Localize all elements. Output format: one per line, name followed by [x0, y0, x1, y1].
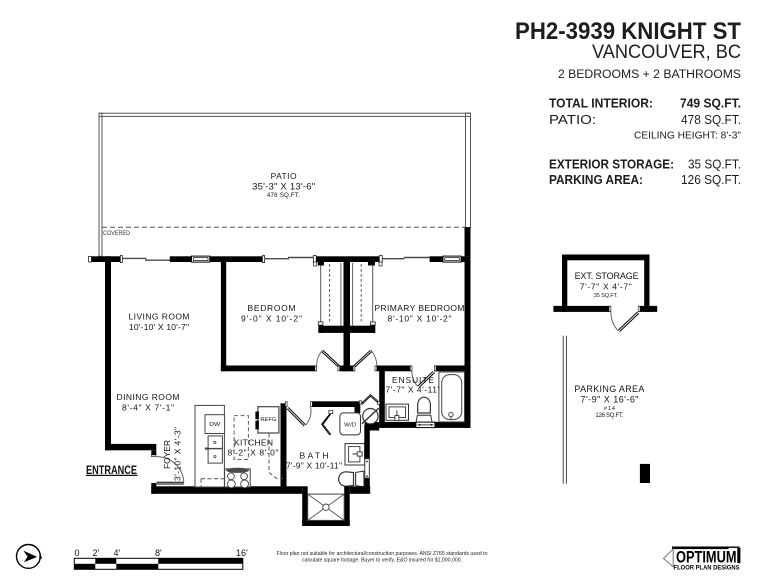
svg-text:478 SQ.FT.: 478 SQ.FT.	[267, 192, 300, 199]
svg-text:calculate square footage. Buye: calculate square footage. Buyer to verif…	[302, 558, 462, 564]
svg-text:N: N	[39, 555, 42, 560]
svg-text:PATIO:: PATIO:	[549, 113, 596, 127]
svg-text:8'-2" X 8'-0": 8'-2" X 8'-0"	[228, 447, 279, 457]
svg-text:KITCHEN: KITCHEN	[234, 437, 273, 447]
svg-text:ENSUITE: ENSUITE	[392, 375, 434, 385]
svg-text:2 BEDROOMS + 2 BATHROOMS: 2 BEDROOMS + 2 BATHROOMS	[558, 69, 741, 81]
svg-text:7'-9" X 16'-6": 7'-9" X 16'-6"	[581, 395, 639, 405]
svg-text:9'-0" X 10'-2": 9'-0" X 10'-2"	[241, 314, 302, 324]
svg-text:PARKING AREA: PARKING AREA	[574, 384, 644, 394]
svg-text:7'-7" X 4'-7": 7'-7" X 4'-7"	[580, 281, 632, 291]
svg-text:REFG: REFG	[260, 417, 276, 423]
svg-text:126 SQ.FT.: 126 SQ.FT.	[681, 173, 741, 187]
svg-text:COVERED: COVERED	[103, 231, 131, 237]
svg-text:8': 8'	[155, 548, 162, 558]
svg-text:PRIMARY BEDROOM: PRIMARY BEDROOM	[375, 303, 465, 313]
svg-text:8'-10" X 10'-2": 8'-10" X 10'-2"	[388, 314, 452, 324]
svg-text:2': 2'	[93, 548, 100, 558]
svg-text:W/D: W/D	[344, 422, 356, 428]
svg-text:DW: DW	[209, 422, 221, 428]
svg-text:7'-7" X 4'-11": 7'-7" X 4'-11"	[386, 385, 441, 395]
svg-text:DINING ROOM: DINING ROOM	[117, 392, 180, 402]
svg-text:4': 4'	[114, 548, 121, 558]
svg-text:0: 0	[75, 548, 80, 558]
svg-text:CEILING HEIGHT: 8'-3": CEILING HEIGHT: 8'-3"	[634, 131, 741, 142]
svg-text:7'-9" X 10'-11": 7'-9" X 10'-11"	[286, 461, 342, 471]
svg-text:FLOOR PLAN DESIGNS: FLOOR PLAN DESIGNS	[674, 565, 740, 572]
svg-text:PARKING AREA:: PARKING AREA:	[549, 173, 643, 187]
svg-text:16': 16'	[236, 548, 248, 558]
svg-text:10'-10' X 10'-7": 10'-10' X 10'-7"	[129, 322, 189, 332]
svg-text:TOTAL INTERIOR:: TOTAL INTERIOR:	[549, 97, 653, 111]
svg-text:8'-4" X 7'-1": 8'-4" X 7'-1"	[122, 403, 174, 413]
svg-text:FOYER: FOYER	[162, 440, 172, 469]
svg-text:749 SQ.FT.: 749 SQ.FT.	[680, 97, 741, 111]
svg-text:126 SQ.FT.: 126 SQ.FT.	[595, 413, 623, 419]
svg-text:478 SQ.FT.: 478 SQ.FT.	[681, 113, 741, 127]
svg-text:35'-3" X 13'-6": 35'-3" X 13'-6"	[252, 182, 315, 193]
svg-text:3'-10" X 4'-3": 3'-10" X 4'-3"	[173, 427, 183, 481]
svg-text:LIVING ROOM: LIVING ROOM	[129, 312, 190, 322]
svg-text:35 SQ.FT.: 35 SQ.FT.	[594, 293, 618, 299]
svg-text:EXTERIOR STORAGE:: EXTERIOR STORAGE:	[549, 158, 674, 172]
svg-text:BEDROOM: BEDROOM	[248, 303, 296, 313]
svg-text:EXT. STORAGE: EXT. STORAGE	[575, 271, 639, 281]
svg-text:Floor plan not suitable for ar: Floor plan not suitable for architectura…	[277, 551, 488, 557]
svg-text:OPTIMUM: OPTIMUM	[676, 547, 737, 566]
svg-text:#14: #14	[604, 406, 615, 412]
svg-text:BATH: BATH	[300, 451, 329, 461]
svg-text:VANCOUVER, BC: VANCOUVER, BC	[592, 42, 741, 63]
svg-text:PATIO: PATIO	[271, 171, 297, 181]
svg-text:35 SQ.FT.: 35 SQ.FT.	[688, 158, 741, 172]
